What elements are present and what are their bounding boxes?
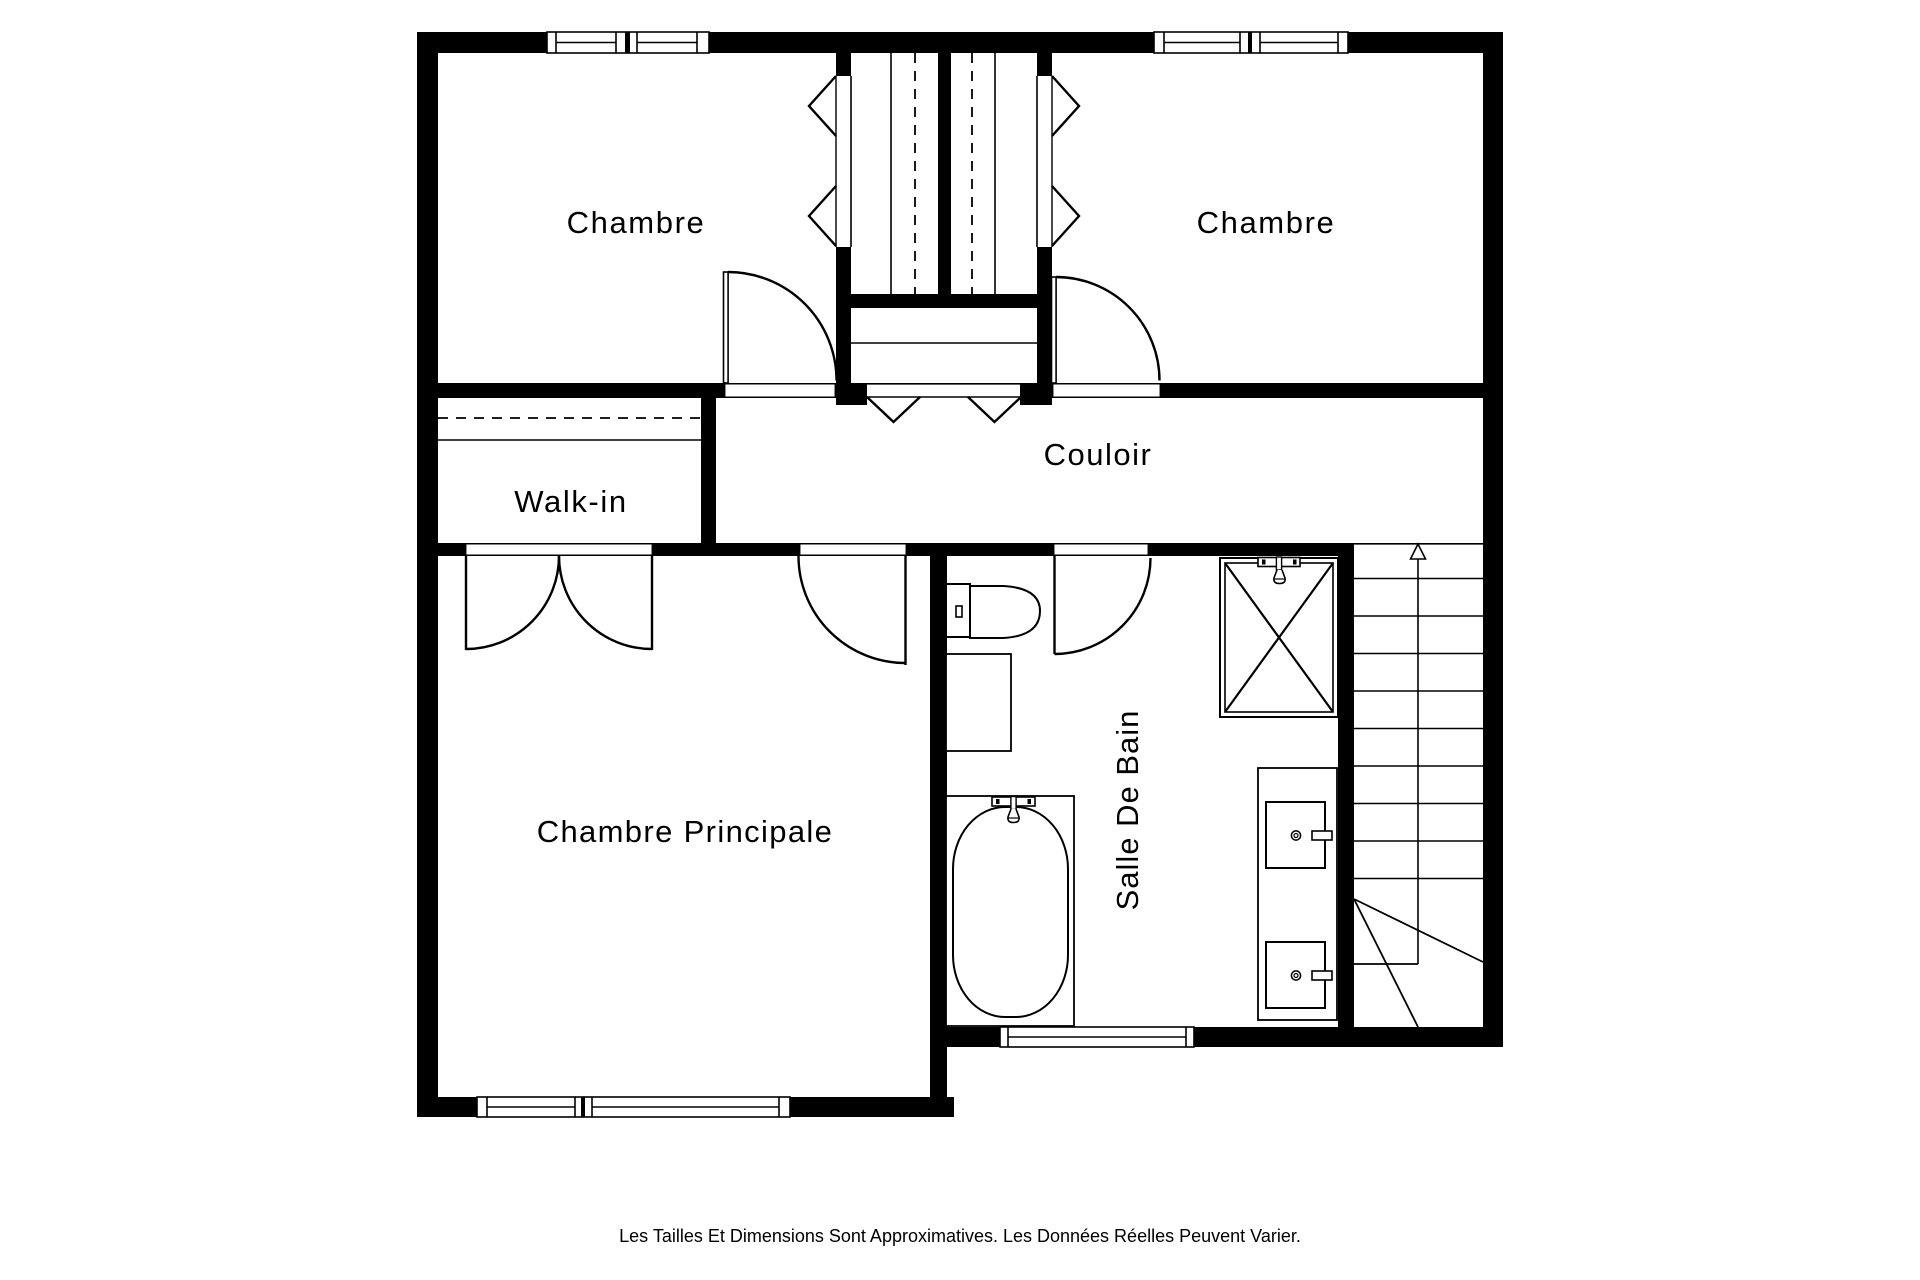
svg-text:Les Tailles Et Dimensions Sont: Les Tailles Et Dimensions Sont Approxima… [619,1226,1301,1246]
svg-text:Chambre: Chambre [1197,205,1336,240]
svg-text:Chambre: Chambre [567,205,706,240]
svg-text:Couloir: Couloir [1044,437,1153,472]
svg-text:Salle De Bain: Salle De Bain [1110,710,1145,911]
svg-text:Chambre Principale: Chambre Principale [537,814,834,849]
svg-text:Walk-in: Walk-in [514,484,627,519]
